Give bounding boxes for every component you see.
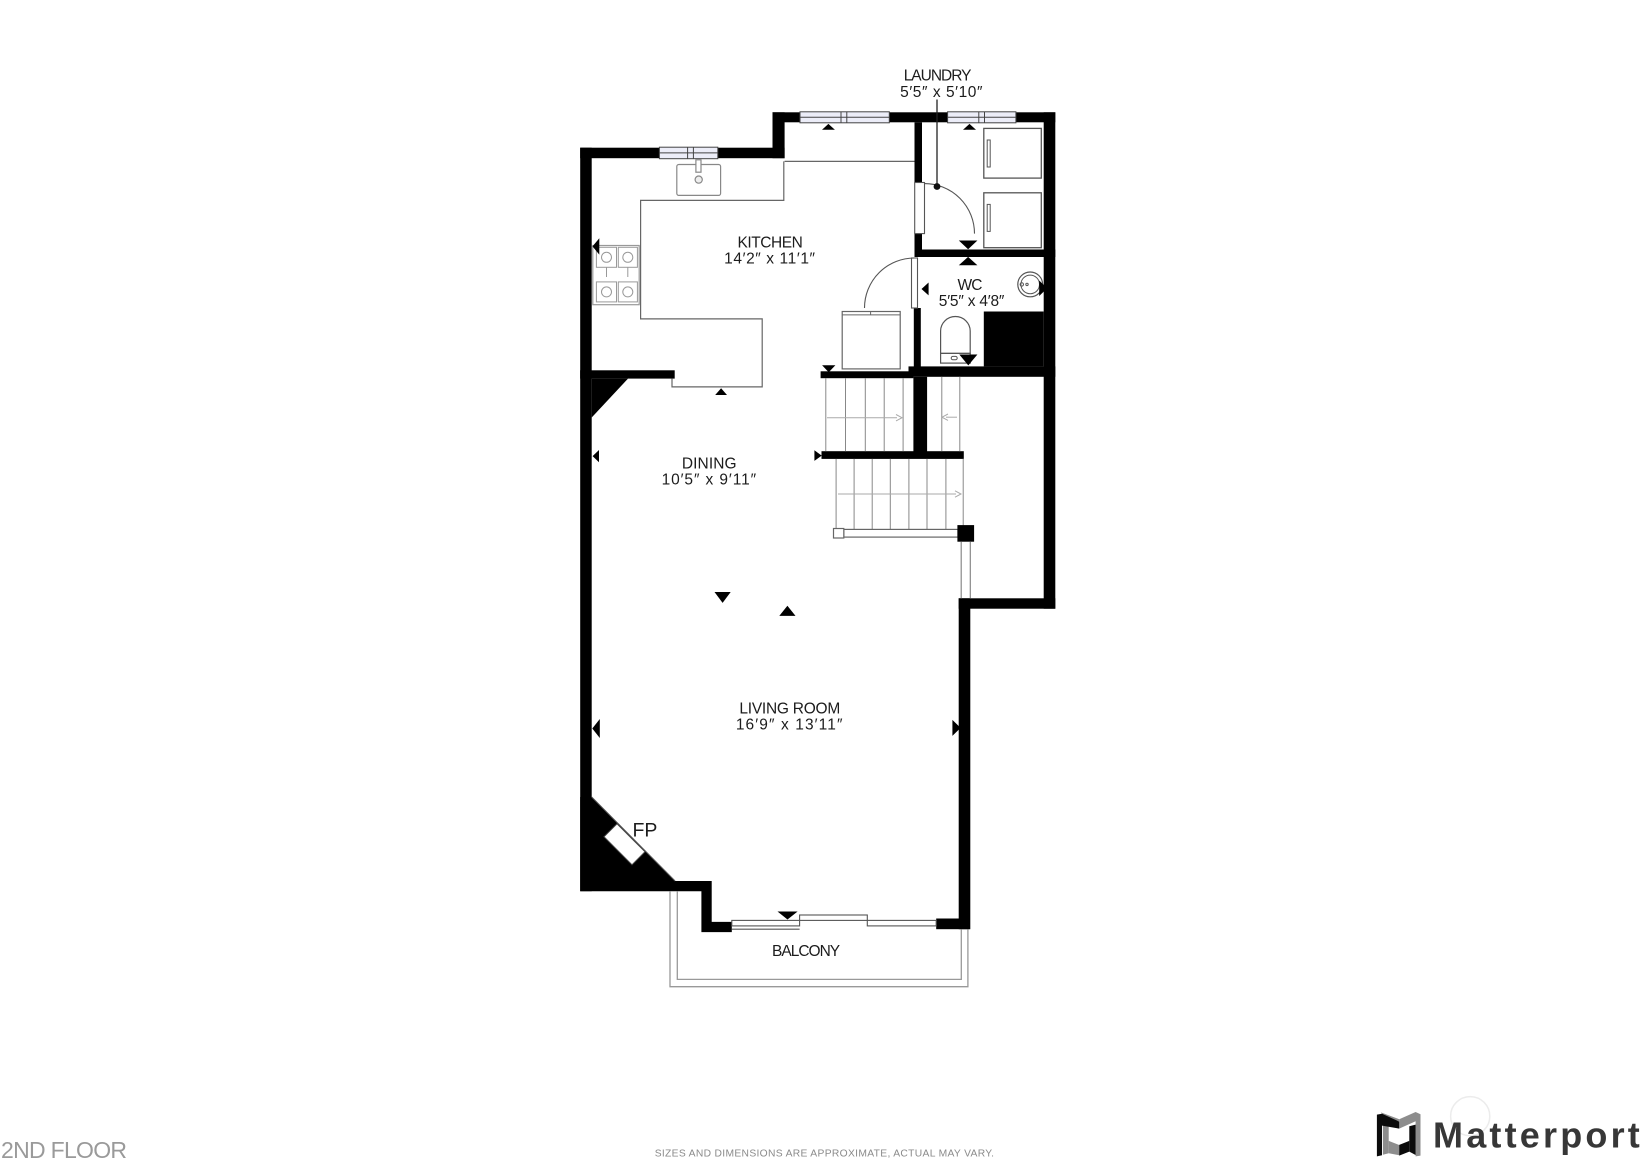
svg-text:5′5″ x 5′10″: 5′5″ x 5′10″ [900,84,983,101]
svg-text:WC: WC [957,277,982,294]
svg-text:DINING: DINING [682,455,737,472]
svg-text:FP: FP [632,819,657,841]
svg-text:BALCONY: BALCONY [772,943,840,960]
svg-text:16′9″ x 13′11″: 16′9″ x 13′11″ [736,717,844,734]
svg-text:LIVING ROOM: LIVING ROOM [739,700,840,717]
svg-text:Matterport: Matterport [1433,1115,1643,1156]
svg-text:14′2″ x 11′1″: 14′2″ x 11′1″ [724,251,816,268]
svg-text:KITCHEN: KITCHEN [737,234,802,251]
svg-text:5′5″ x 4′8″: 5′5″ x 4′8″ [939,293,1005,310]
svg-text:SIZES AND DIMENSIONS ARE APPRO: SIZES AND DIMENSIONS ARE APPROXIMATE, AC… [655,1149,995,1160]
svg-text:10′5″ x 9′11″: 10′5″ x 9′11″ [662,472,757,489]
svg-text:2ND FLOOR: 2ND FLOOR [1,1137,126,1163]
svg-text:LAUNDRY: LAUNDRY [904,68,971,85]
